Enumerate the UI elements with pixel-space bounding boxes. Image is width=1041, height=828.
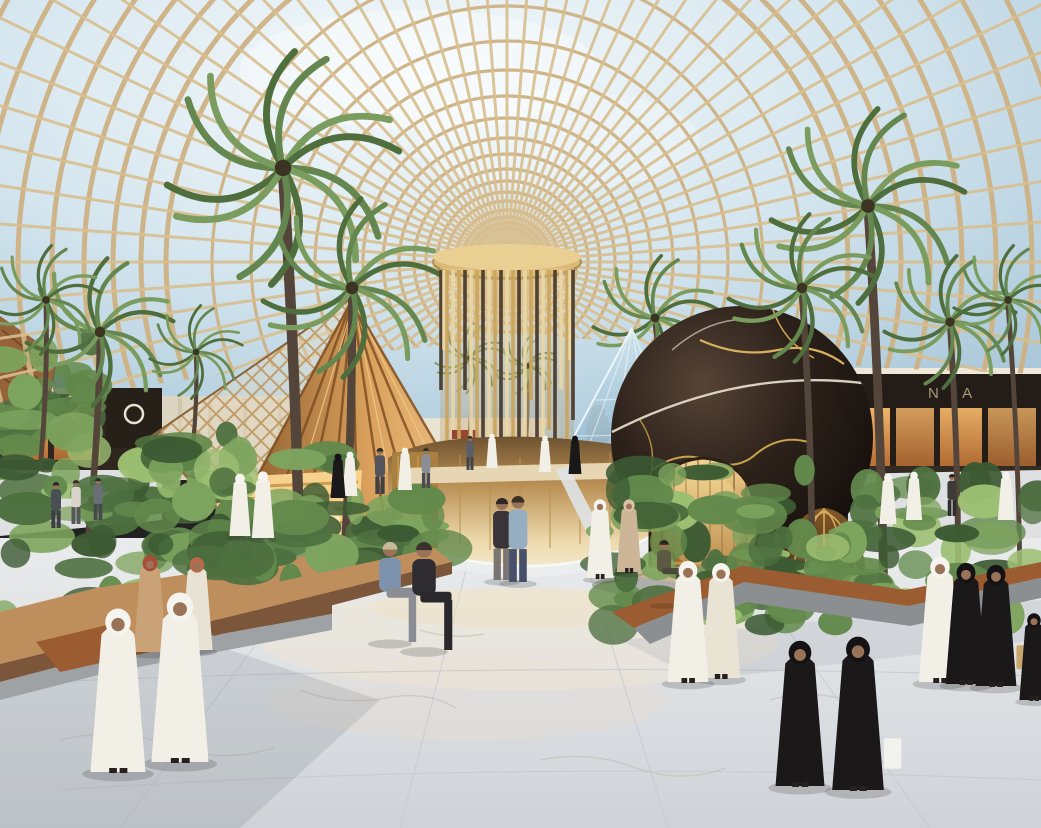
right-shop-window [940,408,982,466]
right-shop-window [988,408,1036,466]
right-shop-window [896,408,934,466]
scene-canvas: N A [0,0,1041,828]
atrium-render: N A [0,0,1041,828]
